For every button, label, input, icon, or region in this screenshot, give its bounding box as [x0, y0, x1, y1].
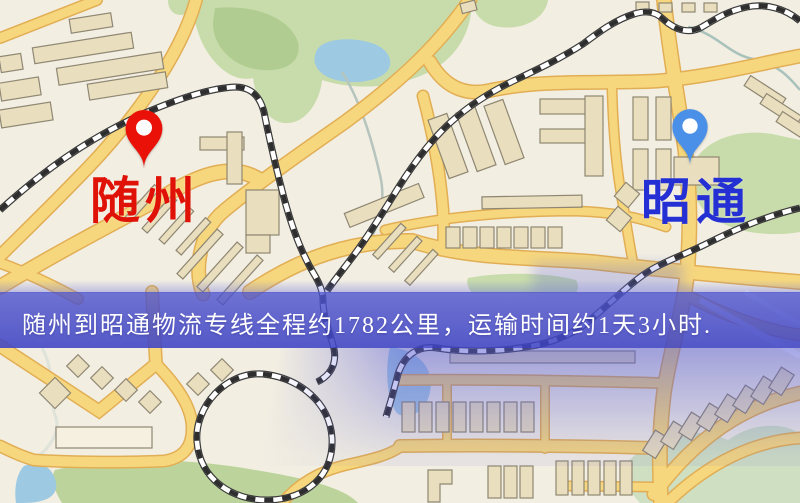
origin-marker-pin[interactable]: [120, 102, 168, 174]
origin-pin-shape: [126, 110, 163, 168]
destination-city-label: 昭通: [641, 177, 751, 227]
origin-pin-hole: [136, 120, 152, 136]
destination-pin-shape: [672, 109, 707, 165]
origin-city-label: 随州: [90, 176, 200, 226]
route-info-text: 随州到昭通物流专线全程约1782公里，运输时间约1天3小时.: [22, 305, 712, 340]
map-canvas[interactable]: [0, 0, 800, 503]
destination-marker-pin[interactable]: [667, 100, 713, 172]
route-info-banner: 随州到昭通物流专线全程约1782公里，运输时间约1天3小时.: [0, 292, 800, 348]
logistics-route-map-image: 随州 昭通 随州到昭通物流专线全程约1782公里，运输时间约1天3小时.: [0, 0, 800, 503]
destination-pin-hole: [682, 118, 697, 133]
